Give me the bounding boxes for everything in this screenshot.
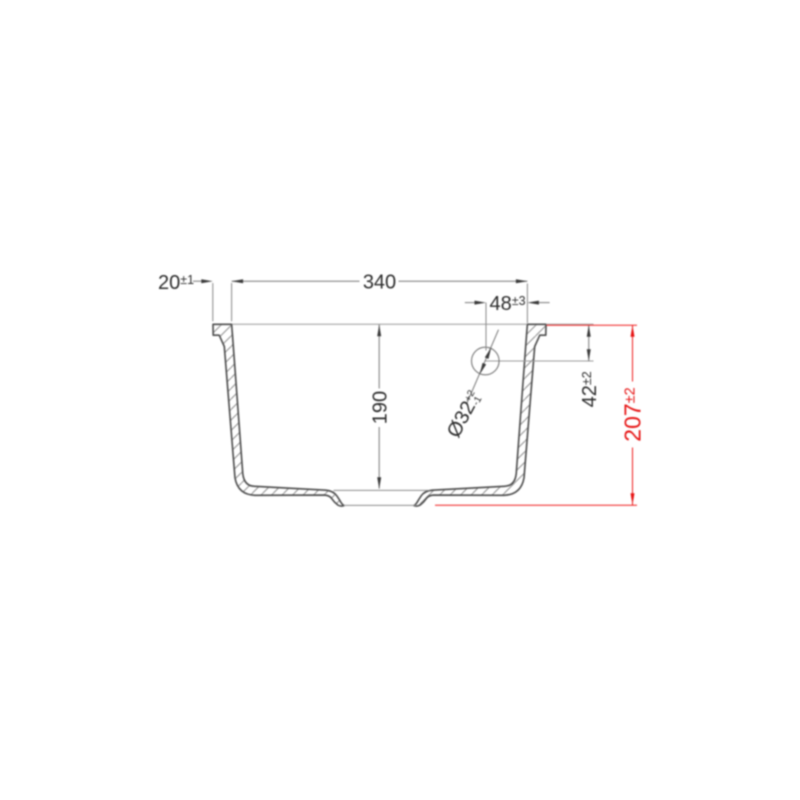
svg-text:340: 340 [363, 271, 396, 293]
svg-text:42±2: 42±2 [579, 371, 601, 407]
svg-text:Ø32+2-1: Ø32+2-1 [443, 387, 486, 441]
svg-text:190: 190 [369, 391, 391, 424]
svg-text:48±3: 48±3 [490, 293, 526, 315]
svg-text:20±1: 20±1 [158, 272, 194, 294]
